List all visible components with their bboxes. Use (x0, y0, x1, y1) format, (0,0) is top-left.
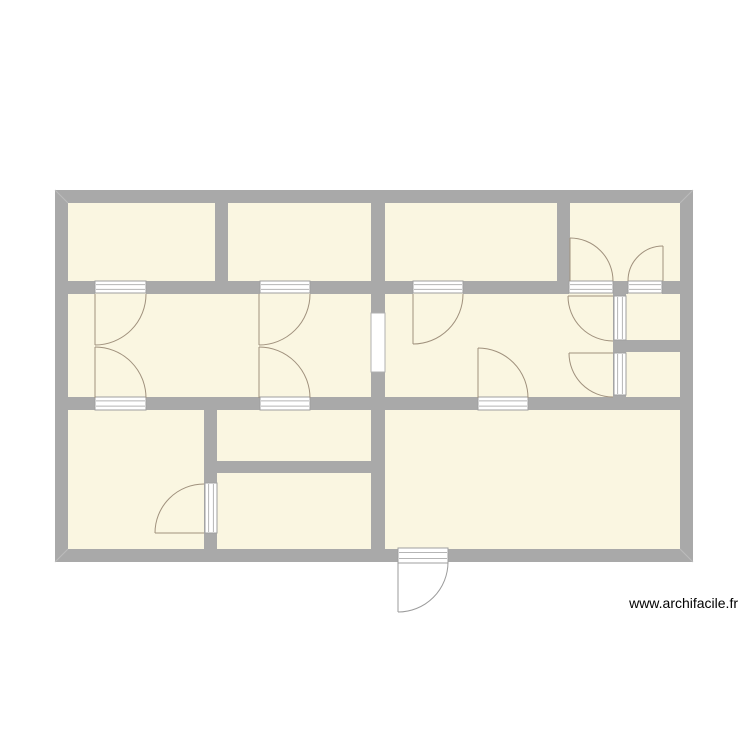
door-sill-room2-hall (260, 281, 310, 293)
wall-hall-south-seg-4 (528, 397, 680, 410)
door-sill-bottom-left (205, 483, 217, 533)
hall-east (385, 294, 613, 397)
door-sill-entrance (398, 548, 448, 563)
room-top-3 (385, 203, 557, 281)
door-sill-hall-living (478, 397, 528, 410)
door-sill-hall-bc (260, 397, 310, 410)
wall-outer-left (55, 190, 68, 562)
floorplan-drawing (0, 0, 750, 750)
opening-hall-passage (371, 313, 385, 372)
wall-bottom-center-divider (217, 461, 371, 473)
door-sill-small-lower (614, 353, 626, 395)
wall-top-divider-2-upper (371, 200, 385, 313)
door-sill-hall-bl (95, 397, 146, 410)
room-bc-upper (217, 410, 371, 461)
wall-top-divider-3 (557, 200, 570, 281)
room-living (385, 410, 680, 549)
room-small-lower (626, 352, 680, 397)
room-bc-lower (217, 473, 371, 549)
room-top-4 (570, 203, 680, 281)
watermark-text: www.archifacile.fr (629, 596, 738, 610)
door-entrance-swing-arc (398, 562, 448, 612)
hall-west (68, 294, 371, 397)
wall-mid-wall-seg-1 (68, 281, 95, 294)
room-top-2 (228, 203, 371, 281)
wall-top-divider-2-lower (371, 372, 385, 552)
wall-mid-wall-seg-4 (463, 281, 569, 294)
floorplan-page: www.archifacile.fr (0, 0, 750, 750)
wall-mid-wall-post (613, 281, 628, 294)
room-bottom-left (68, 410, 204, 549)
door-sill-room4-right (628, 281, 662, 293)
wall-mid-wall-seg-2 (146, 281, 260, 294)
wall-top-divider-1 (215, 200, 228, 294)
wall-mid-wall-seg-3 (310, 281, 413, 294)
wall-hall-south-seg-2 (146, 397, 260, 410)
wall-mid-wall-seg-5 (662, 281, 680, 294)
room-top-1 (68, 203, 215, 281)
door-sill-room1-hall (95, 281, 146, 293)
wall-right-column-divider (626, 340, 680, 352)
door-sill-room4-left (569, 281, 613, 293)
wall-hall-south-seg-3 (310, 397, 478, 410)
door-sill-small-upper (614, 296, 626, 340)
wall-hall-south-seg-1 (68, 397, 95, 410)
wall-outer-right (680, 190, 693, 562)
room-small-upper (626, 294, 680, 340)
door-sill-room3-hall (413, 281, 463, 293)
